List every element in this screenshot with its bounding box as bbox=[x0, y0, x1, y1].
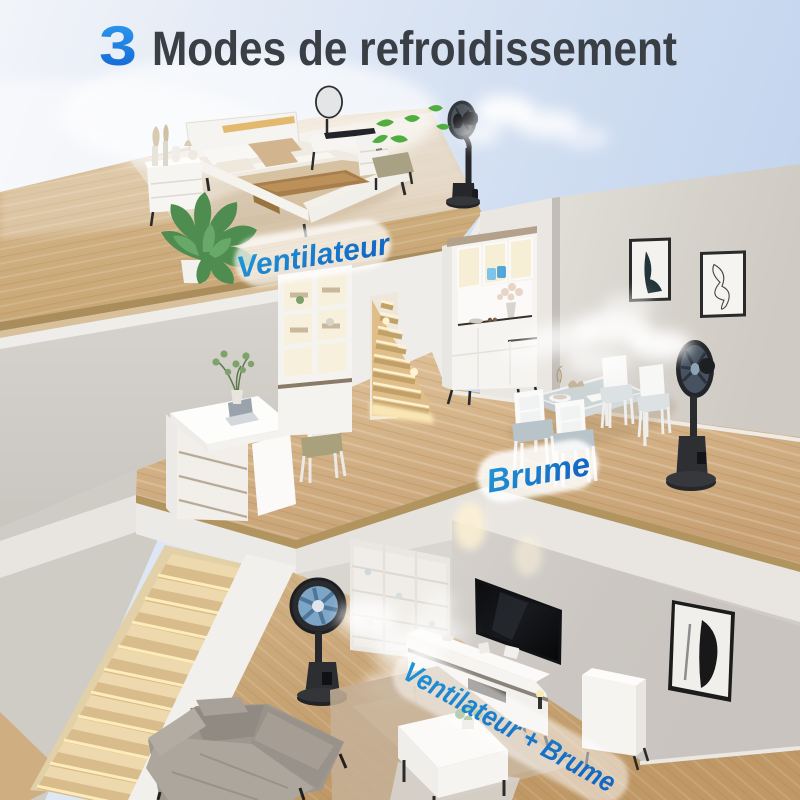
svg-text:Modes de refroidissement: Modes de refroidissement bbox=[152, 23, 677, 76]
svg-text:3: 3 bbox=[99, 14, 137, 77]
